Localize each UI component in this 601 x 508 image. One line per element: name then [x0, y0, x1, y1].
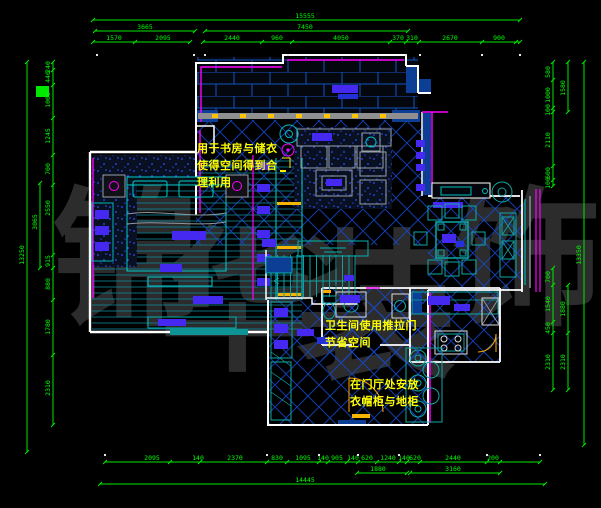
shelf-edge — [277, 202, 301, 205]
dimension-label: 2310 — [559, 354, 567, 370]
dimension-label: 2310 — [44, 380, 52, 396]
bed-highlight — [160, 264, 182, 272]
cabinet-highlight — [416, 152, 425, 159]
dimension-label: 1540 — [544, 296, 552, 312]
track-mark — [380, 114, 386, 118]
dimension-label: 1880 — [559, 301, 567, 317]
door-mark — [323, 290, 331, 293]
wardrobe-highlight — [274, 324, 288, 333]
tv-bench-highlight — [158, 319, 186, 326]
dimension-label: 2370 — [227, 454, 243, 462]
dimension-label: 7450 — [297, 23, 313, 31]
track-mark — [268, 114, 274, 118]
dimension-label: 700 — [544, 271, 552, 283]
cabinet-block — [266, 257, 292, 273]
dimension-label: 2440 — [445, 454, 461, 462]
console-highlight — [262, 239, 276, 247]
dimension-label: 3160 — [445, 465, 461, 473]
wardrobe-highlight — [95, 210, 109, 219]
wall-fill — [412, 292, 422, 314]
dimension-label: 440 — [44, 71, 52, 83]
bay-magenta-trim — [536, 189, 540, 292]
flower-center — [286, 148, 289, 151]
dimension-label: 915 — [44, 255, 52, 267]
shelf-highlight — [257, 206, 270, 214]
dimension-label: 100 — [544, 177, 552, 189]
track-mark — [296, 114, 302, 118]
cabinet-highlight — [416, 164, 425, 171]
dimension-label: 2110 — [544, 132, 552, 148]
bottom-dim-chain — [100, 462, 545, 484]
dimension-label: 1240 — [380, 454, 396, 462]
dimension-label: 100 — [544, 104, 552, 116]
table-highlight — [442, 234, 456, 243]
annotation-entry: 在门厅处安放 衣帽柜与地柜 — [350, 376, 419, 410]
wardrobe-highlight — [274, 308, 288, 317]
dimension-label: 450 — [544, 322, 552, 334]
track-mark — [212, 114, 218, 118]
wardrobe-highlight — [274, 340, 288, 349]
dimension-label: 905 — [331, 454, 343, 462]
dimension-label: 13350 — [575, 245, 583, 265]
balcony-label-block — [338, 94, 358, 99]
door-sill — [352, 414, 370, 418]
dimension-label: 620 — [361, 454, 373, 462]
wardrobe-highlight — [95, 242, 109, 251]
shelf-highlight — [257, 230, 270, 238]
dimension-label: 1580 — [559, 80, 567, 96]
nightstand — [103, 175, 125, 197]
vanity-highlight — [340, 295, 360, 303]
cad-floorplan-canvas: 锦华装饰 — [0, 0, 601, 508]
hall-highlight — [297, 329, 314, 336]
dimension-label: 1000 — [544, 87, 552, 103]
balcony-tile-floor — [197, 57, 418, 114]
balcony-label-block — [332, 85, 358, 93]
dimension-label: 1780 — [44, 319, 52, 335]
bed-highlight — [172, 231, 206, 240]
dimension-label: 3665 — [137, 23, 153, 31]
dimension-label: 2095 — [155, 34, 171, 42]
track-mark — [324, 114, 330, 118]
cabinet-highlight — [416, 184, 425, 191]
dimension-label: 2550 — [44, 200, 52, 216]
lamp-mark — [280, 170, 286, 172]
dimension-label: 830 — [271, 454, 283, 462]
dimension-label: 1245 — [44, 128, 52, 144]
dimension-label: 960 — [271, 34, 283, 42]
floorplan-drawing: 1555536657450157020952440960405037031026… — [0, 0, 601, 508]
dimension-label: 880 — [44, 278, 52, 290]
room-label-block — [193, 296, 223, 304]
dimension-label: 15555 — [295, 12, 315, 20]
plant-core — [498, 188, 506, 196]
dimension-label: 2440 — [224, 34, 240, 42]
track-mark — [352, 114, 358, 118]
dimension-label: 620 — [409, 454, 421, 462]
dimension-label: 3065 — [31, 214, 39, 230]
dimension-label: 600 — [544, 167, 552, 179]
dimension-label: 370 — [392, 34, 404, 42]
dimension-label: 2670 — [442, 34, 458, 42]
dimension-label: 2095 — [144, 454, 160, 462]
dimension-label: 200 — [487, 454, 499, 462]
dimension-label: 240 — [44, 61, 52, 73]
dimension-label: 700 — [44, 163, 52, 175]
dimension-label: 580 — [544, 66, 552, 78]
stair-highlight — [344, 275, 354, 281]
shelf-edge — [277, 246, 301, 249]
counter-highlight — [428, 296, 450, 305]
wall-fill — [418, 79, 431, 93]
dimension-label: 1570 — [106, 34, 122, 42]
coffee-table-highlight — [326, 179, 342, 186]
dimension-label: 310 — [406, 34, 418, 42]
bedroom-window-band — [170, 329, 248, 335]
cabinet-highlight — [416, 140, 425, 147]
dimension-label: 900 — [493, 34, 505, 42]
dimension-label: 4050 — [333, 34, 349, 42]
sofa-highlight — [312, 133, 332, 141]
table-highlight — [456, 241, 464, 247]
tv-symbol — [320, 248, 346, 252]
dimension-label: 1000 — [44, 92, 52, 108]
dimension-label: 1880 — [370, 465, 386, 473]
dimension-label: 14445 — [295, 476, 315, 484]
wall-fill — [406, 66, 418, 93]
track-mark — [240, 114, 246, 118]
wardrobe-highlight — [95, 226, 109, 235]
counter-highlight — [454, 304, 470, 311]
dimension-label: 1095 — [295, 454, 311, 462]
dimension-label: 2310 — [544, 354, 552, 370]
dimension-label: 13250 — [18, 245, 26, 265]
annotation-study: 用于书房与储衣 使得空间得到合 理利用 — [197, 140, 278, 191]
annotation-bathroom: 卫生间使用推拉门 节省空间 — [325, 317, 417, 351]
dimension-label: 140 — [192, 454, 204, 462]
shelf-highlight — [257, 278, 270, 286]
